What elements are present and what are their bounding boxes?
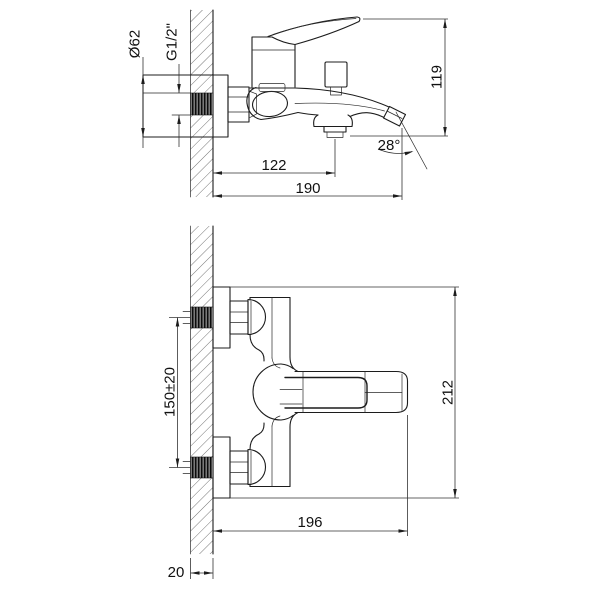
shower-outlet-nipple (327, 132, 343, 138)
supply-thread (191, 307, 214, 328)
handle-cap (252, 37, 295, 87)
dim-label-spout-reach: 190 (295, 180, 320, 197)
arrowhead-down (453, 489, 457, 498)
body-left-neck-top (250, 335, 264, 362)
arrowhead-left (213, 194, 222, 198)
cartridge-circle (253, 364, 281, 420)
connection-nut-side (228, 87, 249, 122)
cartridge-cover-ellipse (251, 90, 288, 119)
arrowhead-up (176, 318, 180, 327)
dim-label-height: 119 (428, 65, 445, 89)
body-inner-fillet (272, 358, 280, 368)
lever-blade-tip (357, 17, 360, 22)
spout-mid-line (295, 103, 385, 111)
technical-drawing: Ø62 G1/2" 119 28° (0, 0, 600, 600)
arrowhead-right (326, 171, 335, 175)
supply-thread-side (191, 93, 214, 115)
arrowhead-arc (404, 151, 413, 155)
dimension-flange-diameter: Ø62 (126, 30, 145, 148)
front-view: 150±20 212 196 20 (161, 226, 459, 581)
arrowhead-up (141, 75, 145, 84)
arrowhead-right (204, 571, 213, 575)
drawing-page: Ø62 G1/2" 119 28° (0, 0, 600, 600)
connection-nut (230, 451, 248, 484)
dimension-spout-reach: 190 (213, 128, 402, 200)
escutcheon-plate (213, 437, 230, 498)
body-inner-fillet (272, 416, 280, 426)
escutcheon-plate-side (143, 75, 228, 137)
arrowhead-right (399, 529, 408, 533)
lever-blade-inner-line (273, 19, 356, 35)
lever-blade-top (268, 17, 357, 37)
arrowhead-left (213, 171, 222, 175)
arrowhead-left (191, 571, 200, 575)
dim-label-outlet-offset: 122 (261, 157, 286, 174)
eccentric-dome (248, 450, 266, 485)
dim-label-inlet-spacing: 150±20 (161, 367, 178, 417)
arrowhead-up (453, 287, 457, 296)
arrowhead-up (177, 115, 181, 124)
dimension-inlet-spacing: 150±20 (161, 318, 190, 468)
dimension-overall-depth: 196 (213, 415, 408, 536)
supply-thread (191, 457, 214, 478)
body-left-neck-bottom (250, 423, 264, 450)
arrowhead-right (393, 194, 402, 198)
diverter-knob (325, 62, 347, 87)
faucet-side-profile (143, 17, 406, 138)
wall-section-front (191, 226, 214, 554)
arrowhead-down (141, 128, 145, 137)
spout-underside-curve (350, 113, 384, 118)
dimension-thread-size: G1/2" (163, 23, 181, 147)
escutcheon-plate (213, 287, 230, 348)
dimension-outlet-offset: 122 (213, 139, 335, 177)
dim-label-overall-depth: 196 (297, 514, 322, 531)
wall-hatch (191, 226, 214, 554)
eccentric-dome (248, 300, 266, 335)
arrowhead-up (443, 19, 447, 28)
dim-label-spout-angle: 28° (378, 137, 401, 154)
faucet-front-body (250, 298, 408, 487)
dim-label-thread-size: G1/2" (163, 23, 180, 61)
body-fillet-top-right (290, 357, 298, 372)
shower-outlet-ring (324, 127, 346, 133)
arrowhead-left (213, 529, 222, 533)
spout-bottom-edge (298, 113, 318, 116)
handle-blade-inner (285, 378, 367, 409)
dim-label-body-length: 212 (439, 380, 456, 405)
shower-outlet-bump (314, 115, 353, 127)
side-view: Ø62 G1/2" 119 28° (126, 10, 448, 200)
dimension-height: 119 (350, 19, 448, 136)
body-fillet-bottom-right (290, 413, 298, 428)
arrowhead-down (177, 84, 181, 93)
connection-nut (230, 301, 248, 334)
flow-axis-line (396, 112, 427, 169)
dimension-wall-thickness: 20 (168, 558, 213, 581)
dim-label-flange-diameter: Ø62 (126, 30, 143, 58)
dimension-body-length: 212 (230, 287, 459, 498)
arrowhead-down (176, 459, 180, 468)
dim-label-wall-thickness: 20 (168, 564, 185, 581)
arrowhead-down (443, 127, 447, 136)
